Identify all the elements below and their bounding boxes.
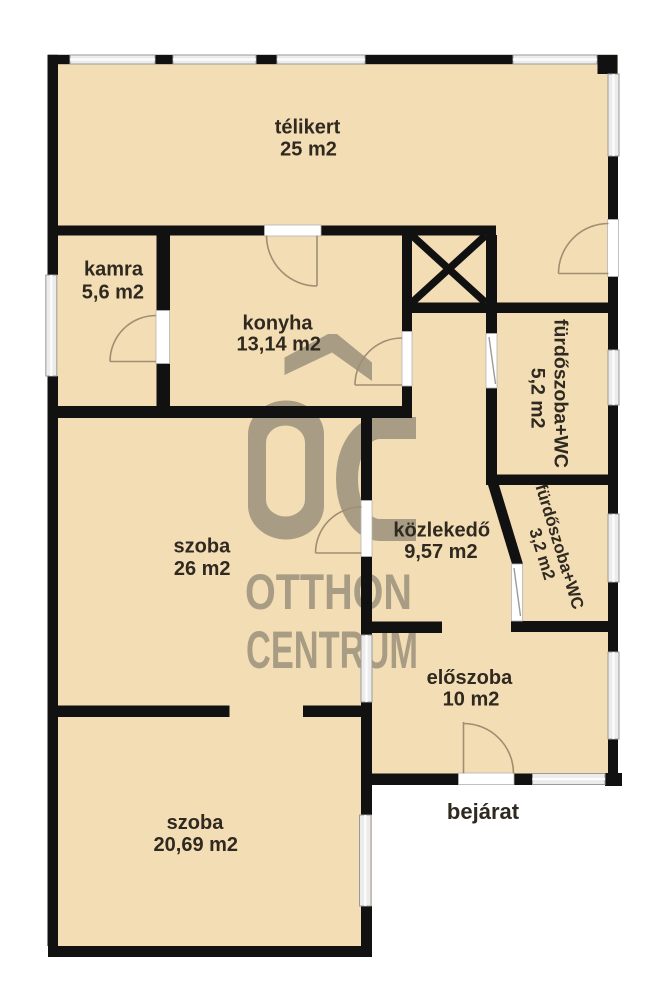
svg-text:közlekedő: közlekedő <box>393 520 490 542</box>
svg-text:5,6 m2: 5,6 m2 <box>82 282 144 304</box>
svg-text:bejárat: bejárat <box>447 799 520 824</box>
svg-text:szoba: szoba <box>174 536 232 558</box>
svg-text:9,57 m2: 9,57 m2 <box>404 541 477 563</box>
svg-text:25 m2: 25 m2 <box>280 139 337 161</box>
svg-text:13,14 m2: 13,14 m2 <box>237 334 322 356</box>
svg-text:10 m2: 10 m2 <box>443 689 500 711</box>
svg-text:26 m2: 26 m2 <box>174 558 231 580</box>
svg-text:OTTHON: OTTHON <box>245 564 412 620</box>
svg-text:kamra: kamra <box>84 259 144 281</box>
svg-text:fürdőszoba+WC: fürdőszoba+WC <box>550 319 572 468</box>
svg-text:20,69 m2: 20,69 m2 <box>154 834 239 856</box>
svg-text:szoba: szoba <box>167 812 225 834</box>
svg-text:konyha: konyha <box>242 313 313 335</box>
svg-text:5,2 m2: 5,2 m2 <box>527 368 549 429</box>
svg-text:télikert: télikert <box>275 117 341 139</box>
svg-text:előszoba: előszoba <box>427 667 513 689</box>
